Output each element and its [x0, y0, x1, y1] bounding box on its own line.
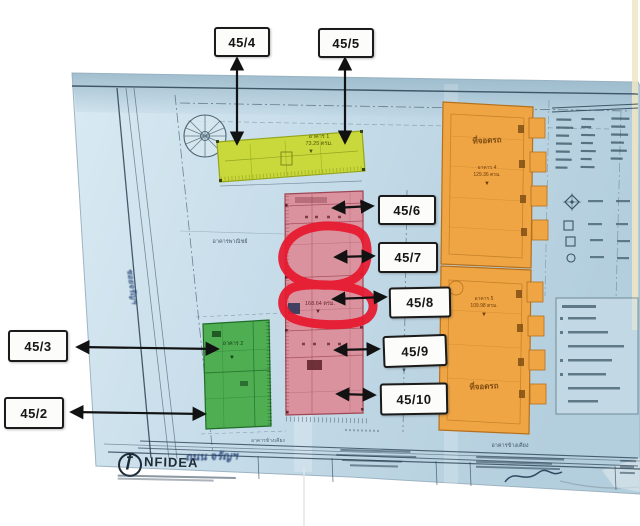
callout-45-3: 45/3	[8, 330, 68, 362]
scanned-site-plan-page: 45/4 45/5 45/6 45/7 45/8 45/9 45/10 45/3…	[0, 0, 640, 526]
callout-45-8-label: 45/8	[406, 295, 434, 310]
callout-45-7-label: 45/7	[394, 250, 421, 265]
callout-45-4-label: 45/4	[228, 35, 255, 50]
callout-45-10-label: 45/10	[396, 391, 431, 407]
callout-45-2: 45/2	[4, 397, 64, 429]
callout-45-3-label: 45/3	[24, 339, 51, 354]
green-building-45-2-45-3	[203, 320, 271, 429]
notes-table	[556, 298, 638, 414]
callout-45-2-label: 45/2	[20, 406, 47, 421]
logo-text: NFIDEA	[144, 454, 199, 470]
infidea-logo: ƒ NFIDEA	[116, 451, 257, 482]
callout-45-6: 45/6	[378, 195, 436, 225]
callout-45-7: 45/7	[378, 242, 438, 273]
callout-45-4: 45/4	[214, 27, 270, 57]
callout-45-9: 45/9	[382, 334, 447, 368]
callout-45-6-label: 45/6	[393, 203, 420, 218]
site-plan-drawing	[0, 0, 640, 526]
callout-45-5-label: 45/5	[332, 36, 359, 51]
callout-45-9-label: 45/9	[401, 343, 429, 359]
callout-45-8: 45/8	[389, 286, 452, 318]
callout-45-5: 45/5	[318, 28, 374, 58]
callout-45-10: 45/10	[380, 382, 449, 415]
page-edge-strip	[632, 0, 638, 330]
logo-f-glyph: ƒ	[124, 450, 134, 471]
